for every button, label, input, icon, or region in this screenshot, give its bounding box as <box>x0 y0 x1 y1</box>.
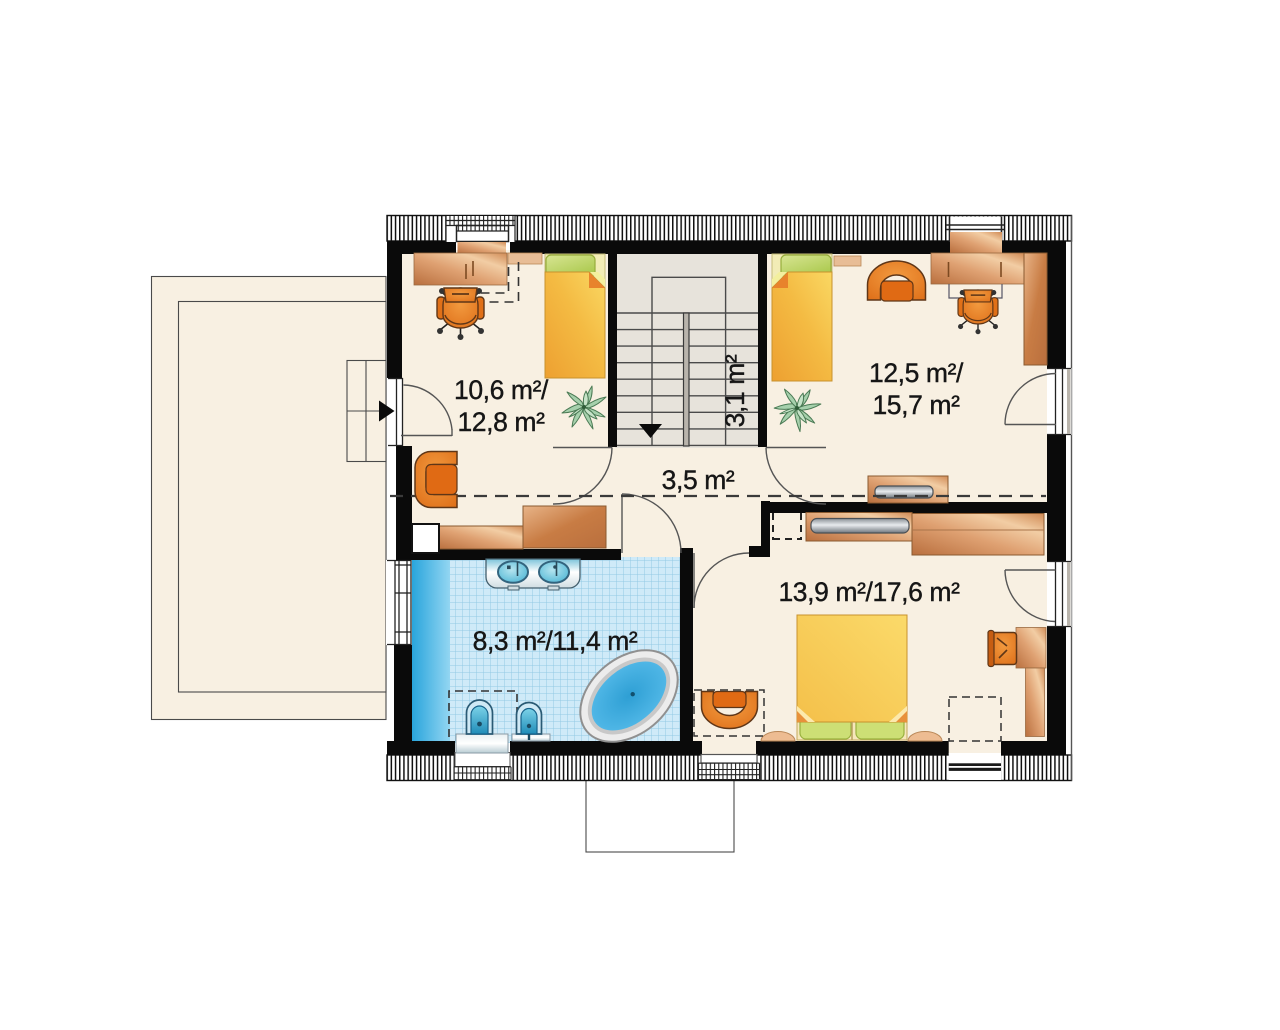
svg-text:12,5 m²/: 12,5 m²/ <box>869 358 964 388</box>
svg-text:10,6 m²/: 10,6 m²/ <box>454 375 549 405</box>
svg-text:15,7 m²: 15,7 m² <box>872 390 960 420</box>
svg-text:3,1 m²: 3,1 m² <box>720 354 750 427</box>
svg-text:13,9 m²/17,6 m²: 13,9 m²/17,6 m² <box>778 577 960 607</box>
svg-text:8,3 m²/11,4 m²: 8,3 m²/11,4 m² <box>473 626 638 656</box>
svg-text:3,5 m²: 3,5 m² <box>662 465 735 495</box>
svg-text:12,8 m²: 12,8 m² <box>457 407 545 437</box>
